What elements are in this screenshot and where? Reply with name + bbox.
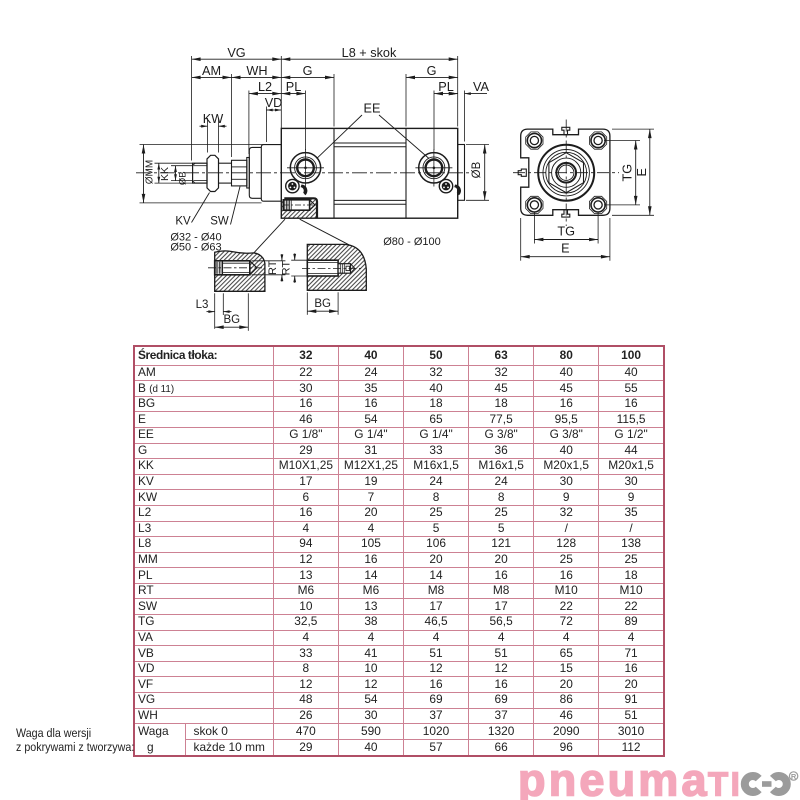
svg-text:TI: TI xyxy=(708,766,742,800)
svg-text:PL: PL xyxy=(438,80,454,94)
svg-text:KV: KV xyxy=(175,216,191,228)
svg-text:RT: RT xyxy=(281,261,293,276)
svg-text:Ø80 - Ø100: Ø80 - Ø100 xyxy=(383,236,440,248)
svg-text:KK: KK xyxy=(159,167,171,181)
svg-text:Ø50 - Ø63: Ø50 - Ø63 xyxy=(170,242,221,254)
svg-text:TG: TG xyxy=(621,164,635,182)
svg-text:G: G xyxy=(427,64,437,78)
svg-text:WH: WH xyxy=(246,64,267,78)
svg-text:TG: TG xyxy=(557,225,575,239)
svg-text:R: R xyxy=(791,772,797,781)
svg-text:PL: PL xyxy=(286,80,302,94)
svg-text:KW: KW xyxy=(203,112,223,126)
svg-text:AM: AM xyxy=(202,64,221,78)
svg-text:E: E xyxy=(635,168,649,176)
svg-text:SW: SW xyxy=(210,216,229,228)
svg-text:E: E xyxy=(561,242,569,256)
svg-text:L8 + skok: L8 + skok xyxy=(342,46,397,60)
svg-text:VA: VA xyxy=(473,80,490,94)
svg-text:pneuma: pneuma xyxy=(518,755,710,800)
svg-text:EE: EE xyxy=(364,102,381,116)
svg-text:VD: VD xyxy=(265,96,283,110)
svg-text:ØB: ØB xyxy=(178,171,189,185)
svg-text:ØB: ØB xyxy=(471,161,483,178)
svg-text:ØMM: ØMM xyxy=(145,160,156,184)
svg-text:BG: BG xyxy=(314,298,331,310)
svg-text:L2: L2 xyxy=(258,80,272,94)
svg-text:L3: L3 xyxy=(196,299,209,311)
svg-text:G: G xyxy=(303,64,313,78)
svg-text:RT: RT xyxy=(267,260,279,275)
svg-text:VG: VG xyxy=(227,46,245,60)
svg-text:BG: BG xyxy=(223,314,240,326)
